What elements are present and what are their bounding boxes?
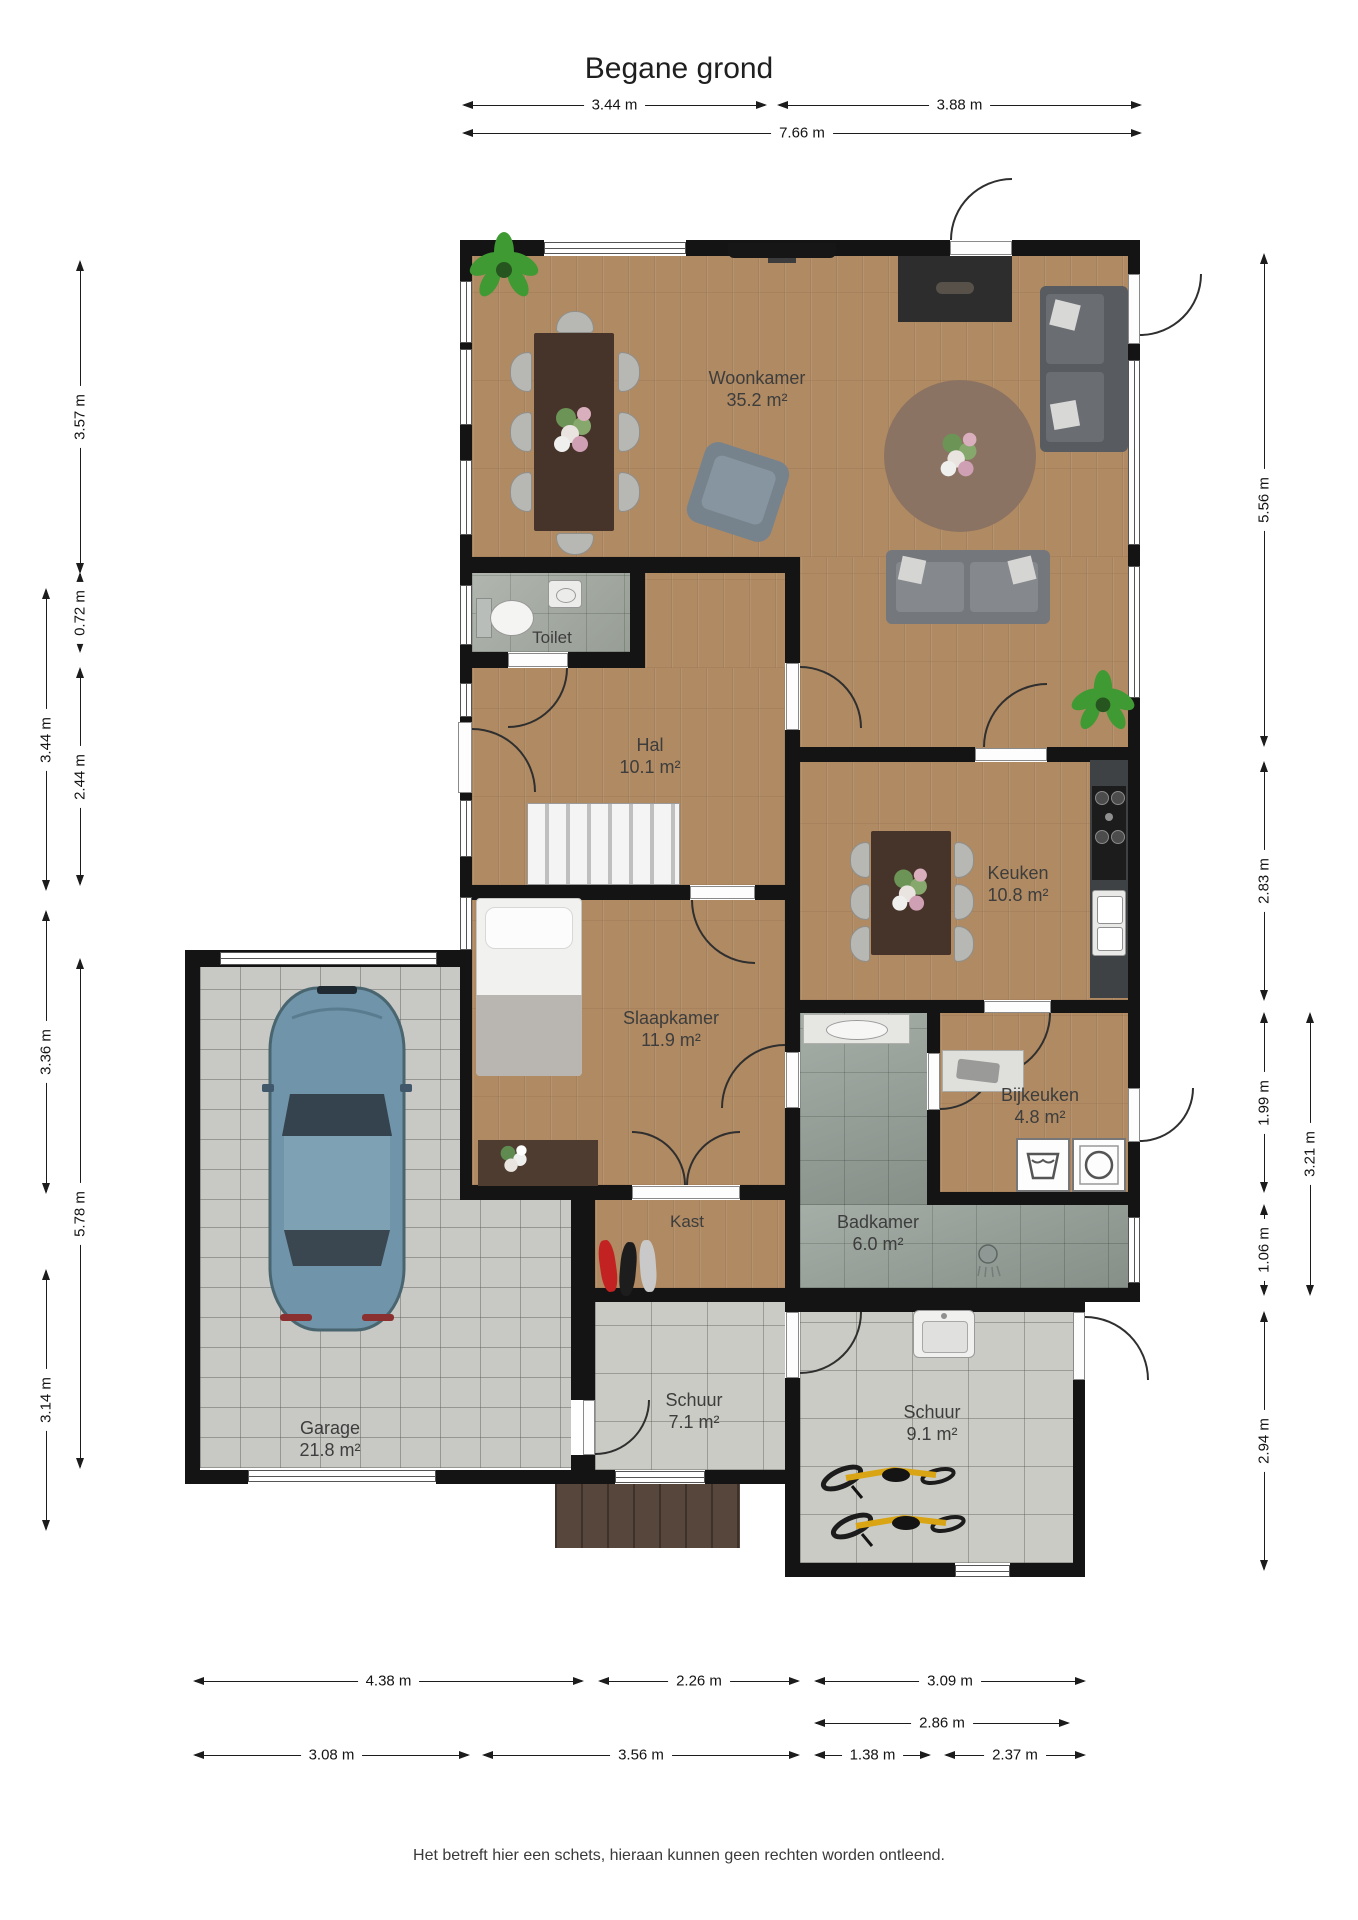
window <box>1128 360 1140 545</box>
flower-bouquet-icon <box>930 426 990 486</box>
dim-left-inner-2: 0.72 m <box>80 573 81 652</box>
dim-bottom-1b: 2.26 m <box>599 1681 799 1682</box>
room-area: 21.8 m² <box>299 1439 360 1461</box>
dim-right-inner-3: 1.99 m <box>1264 1013 1265 1192</box>
window <box>460 683 472 717</box>
tv-stand <box>768 258 796 263</box>
room-area: 6.0 m² <box>837 1233 919 1255</box>
stairs <box>527 803 680 885</box>
room-area: 4.8 m² <box>1001 1106 1079 1128</box>
room-name: Kast <box>670 1211 704 1233</box>
front-door <box>458 722 472 793</box>
dim-right-inner-2: 2.83 m <box>1264 762 1265 1000</box>
washing-machine-icon <box>1016 1138 1070 1192</box>
dim-left-outer-2: 3.36 m <box>46 911 47 1193</box>
room-name: Schuur <box>665 1389 722 1411</box>
keuken-door <box>975 748 1047 761</box>
room-label-kast: Kast <box>670 1211 704 1233</box>
room-area: 11.9 m² <box>623 1029 719 1051</box>
room-name: Slaapkamer <box>623 1007 719 1029</box>
dim-top-total: 7.66 m <box>463 133 1141 134</box>
room-label-toilet: Toilet <box>532 627 572 649</box>
pillow <box>1050 400 1080 430</box>
armchair-cushion <box>700 454 778 527</box>
room-area: 10.8 m² <box>987 884 1048 906</box>
room-label-hal: Hal 10.1 m² <box>619 734 680 778</box>
bed <box>476 898 582 1076</box>
flower-bouquet-icon <box>492 1140 536 1186</box>
dim-right-inner-4: 1.06 m <box>1264 1205 1265 1295</box>
disclaimer-text: Het betreft hier een schets, hieraan kun… <box>413 1847 945 1865</box>
washbasin-counter <box>803 1014 910 1044</box>
plant-icon <box>1070 668 1136 738</box>
window <box>1128 1217 1140 1283</box>
window <box>460 897 472 950</box>
dim-bottom-1c: 3.09 m <box>815 1681 1085 1682</box>
window <box>615 1471 705 1483</box>
decor <box>936 282 974 294</box>
faucet <box>941 1313 947 1319</box>
garage-schuur-door <box>583 1400 595 1455</box>
exterior-door <box>1128 1088 1140 1142</box>
badkamer-door <box>786 1052 799 1108</box>
toilet-door <box>508 653 568 667</box>
exterior-door <box>1073 1312 1085 1380</box>
burner <box>1111 791 1125 805</box>
slaapkamer-double-door <box>632 1186 740 1199</box>
dim-left-inner-4: 5.78 m <box>80 959 81 1468</box>
room-name: Schuur <box>903 1401 960 1423</box>
dim-right-inner-1: 5.56 m <box>1264 254 1265 746</box>
dim-left-outer-1: 3.44 m <box>46 589 47 890</box>
dim-top-1: 3.44 m <box>463 105 766 106</box>
room-name: Badkamer <box>837 1211 919 1233</box>
window <box>460 349 472 425</box>
sideboard <box>898 256 1012 322</box>
dim-bottom-1a: 4.38 m <box>194 1681 583 1682</box>
deck-strip <box>555 1484 740 1548</box>
room-area: 9.1 m² <box>903 1423 960 1445</box>
door-arc <box>950 178 1012 240</box>
window <box>460 460 472 535</box>
knob <box>1105 813 1113 821</box>
floor-plan-canvas: Begane grond <box>0 0 1358 1920</box>
stove <box>1092 786 1126 880</box>
dim-right-inner-5: 2.94 m <box>1264 1312 1265 1570</box>
room-label-bijkeuken: Bijkeuken 4.8 m² <box>1001 1084 1079 1128</box>
dim-left-inner-1: 3.57 m <box>80 261 81 573</box>
dim-bottom-3b: 3.56 m <box>483 1755 799 1756</box>
toilet-sink <box>548 580 582 608</box>
floor-keuken <box>800 762 1128 1000</box>
window <box>460 585 472 645</box>
hal-woonkamer-door <box>786 663 799 730</box>
room-name: Garage <box>299 1417 360 1439</box>
door-arc <box>1140 1088 1194 1142</box>
window <box>460 800 472 857</box>
basin <box>1097 896 1123 924</box>
burner <box>1111 830 1125 844</box>
room-label-schuur-groot: Schuur 9.1 m² <box>903 1401 960 1445</box>
slaapkamer-door <box>690 886 755 899</box>
room-label-woonkamer: Woonkamer 35.2 m² <box>709 367 806 411</box>
room-label-schuur-klein: Schuur 7.1 m² <box>665 1389 722 1433</box>
basin <box>556 588 576 603</box>
garage-door <box>248 1470 436 1482</box>
utility-sink <box>913 1310 975 1358</box>
dim-bottom-2a: 2.86 m <box>815 1723 1069 1724</box>
dim-bottom-3a: 3.08 m <box>194 1755 469 1756</box>
flower-bouquet-icon <box>886 862 936 920</box>
badkamer-bijkeuken-door <box>928 1053 940 1110</box>
dryer-icon <box>1072 1138 1126 1192</box>
dim-left-inner-3: 2.44 m <box>80 668 81 885</box>
car <box>262 984 412 1334</box>
sofa <box>886 550 1050 624</box>
door-arc <box>1085 1316 1149 1380</box>
exterior-door <box>1128 274 1140 344</box>
room-label-keuken: Keuken 10.8 m² <box>987 862 1048 906</box>
dim-bottom-3d: 2.37 m <box>945 1755 1085 1756</box>
shower-icon <box>966 1238 1010 1282</box>
flower-bouquet-icon <box>548 400 600 462</box>
schuur-door <box>786 1312 799 1378</box>
room-area: 35.2 m² <box>709 389 806 411</box>
dim-left-outer-3: 3.14 m <box>46 1270 47 1530</box>
basin <box>1097 927 1123 951</box>
room-name: Woonkamer <box>709 367 806 389</box>
room-area: 7.1 m² <box>665 1411 722 1433</box>
room-name: Bijkeuken <box>1001 1084 1079 1106</box>
basin <box>922 1321 968 1353</box>
room-name: Hal <box>619 734 680 756</box>
garage-window <box>220 952 437 965</box>
window <box>544 242 686 254</box>
room-name: Toilet <box>532 627 572 649</box>
sofa <box>1040 286 1128 452</box>
dim-top-2: 3.88 m <box>778 105 1141 106</box>
room-area: 10.1 m² <box>619 756 680 778</box>
door-arc <box>1140 274 1202 336</box>
bicycle-icon <box>818 1456 966 1502</box>
exterior-door <box>950 241 1012 255</box>
page-title: Begane grond <box>585 52 774 86</box>
burner <box>1095 830 1109 844</box>
window <box>955 1565 1010 1577</box>
room-name: Keuken <box>987 862 1048 884</box>
basin <box>826 1020 888 1040</box>
towel <box>956 1059 1000 1084</box>
bijkeuken-door <box>984 1001 1051 1013</box>
room-label-badkamer: Badkamer 6.0 m² <box>837 1211 919 1255</box>
pillow <box>898 556 926 584</box>
blanket <box>476 995 582 1076</box>
dim-right-outer-1: 3.21 m <box>1310 1013 1311 1295</box>
room-label-garage: Garage 21.8 m² <box>299 1417 360 1461</box>
floor-hal-east <box>645 573 785 668</box>
bicycle-icon <box>828 1504 976 1550</box>
kitchen-sink <box>1092 890 1126 956</box>
room-label-slaapkamer: Slaapkamer 11.9 m² <box>623 1007 719 1051</box>
dim-bottom-3c: 1.38 m <box>815 1755 930 1756</box>
plant-icon <box>468 230 540 306</box>
burner <box>1095 791 1109 805</box>
tv <box>728 243 836 258</box>
pillow <box>485 907 573 949</box>
toilet-bowl <box>490 600 534 636</box>
